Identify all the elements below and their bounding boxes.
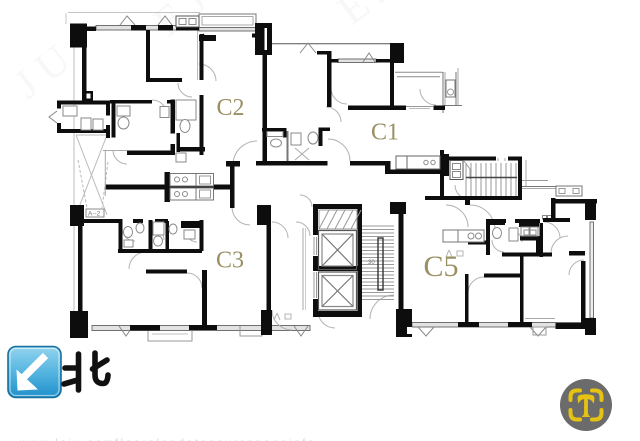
svg-text:C1: C1 — [371, 120, 399, 146]
svg-text:C2: C2 — [217, 95, 245, 121]
svg-text:30: 30 — [368, 260, 375, 266]
svg-text:C5: C5 — [424, 250, 459, 283]
svg-text:A--2: A--2 — [88, 211, 101, 218]
svg-text:C3: C3 — [216, 248, 244, 274]
